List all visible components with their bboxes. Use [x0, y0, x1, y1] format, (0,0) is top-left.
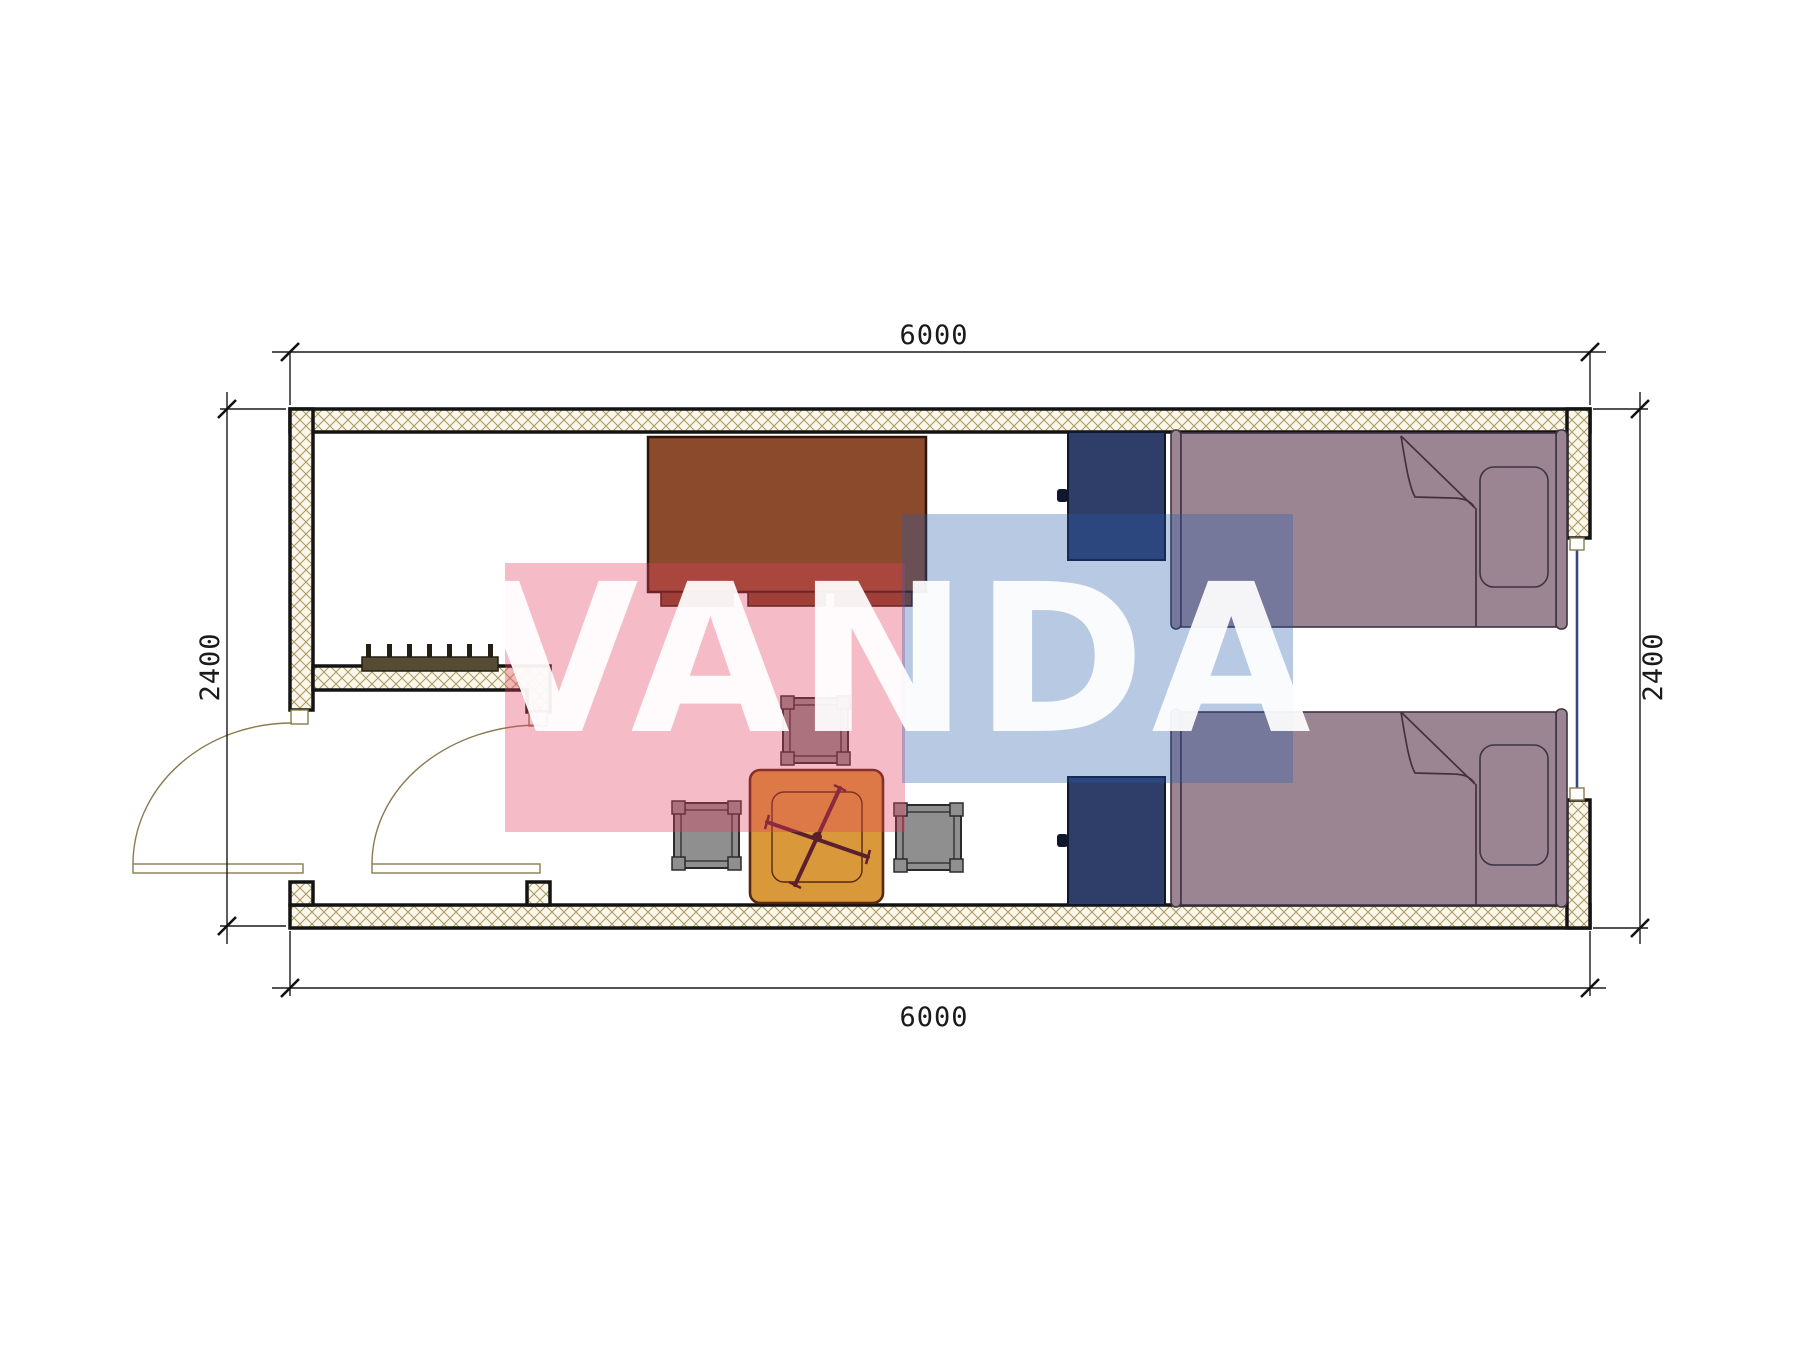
- stool-leg: [728, 857, 741, 870]
- window-jamb-top: [1570, 538, 1584, 550]
- door-pier-inner: [527, 882, 550, 905]
- window-jamb-bottom: [1570, 788, 1584, 800]
- bed-pillow: [1480, 745, 1548, 865]
- dimension-line: [272, 931, 1606, 996]
- radiator-fin: [366, 644, 371, 658]
- stool-leg: [950, 859, 963, 872]
- radiator-fin: [407, 644, 412, 658]
- radiator: [362, 644, 498, 671]
- dimension-line: [272, 352, 1606, 405]
- wall-bottom: [290, 905, 1590, 928]
- radiator-fin: [387, 644, 392, 658]
- entry-door-left: [133, 723, 303, 873]
- stool-leg: [894, 859, 907, 872]
- stool-leg: [672, 857, 685, 870]
- door-leaf: [133, 864, 303, 873]
- watermark-text: VANDA: [479, 540, 1317, 780]
- dimension-bottom: 6000: [272, 931, 1606, 1033]
- nightstand-body: [1068, 777, 1165, 905]
- wall-top: [290, 409, 1590, 432]
- wall-left: [290, 409, 313, 710]
- door-leaf: [372, 864, 540, 873]
- table-leg-hub: [812, 832, 822, 842]
- dimension-left: 2400: [195, 392, 286, 944]
- floor-plan-canvas: 6000 6000 2400 2400 VANDA: [0, 0, 1800, 1350]
- bed-pillow: [1480, 467, 1548, 587]
- nightstand-knob: [1057, 489, 1068, 502]
- door-swing-arc: [133, 723, 292, 864]
- window-right: [1570, 538, 1584, 800]
- bed-headboard: [1556, 430, 1567, 629]
- wall-right-upper: [1567, 409, 1590, 538]
- floor-plan-drawing: 6000 6000 2400 2400 VANDA: [0, 0, 1800, 1350]
- nightstand-knob: [1057, 834, 1068, 847]
- nightstand-bottom: [1057, 777, 1165, 905]
- dimension-right: 2400: [1593, 392, 1669, 944]
- radiator-fin: [447, 644, 452, 658]
- door-jamb-left: [291, 710, 308, 724]
- wall-right-lower: [1567, 800, 1590, 928]
- radiator-fin: [467, 644, 472, 658]
- dimension-top: 6000: [272, 320, 1606, 405]
- stool-leg: [950, 803, 963, 816]
- door-pier-left: [290, 882, 313, 905]
- bed-headboard: [1556, 709, 1567, 907]
- dimension-value-left: 2400: [195, 632, 226, 701]
- dimension-line: [220, 392, 286, 944]
- dimension-value-bottom: 6000: [899, 1002, 968, 1033]
- dimension-value-top: 6000: [899, 320, 968, 351]
- radiator-body: [362, 657, 498, 671]
- dimension-value-right: 2400: [1638, 632, 1669, 701]
- radiator-fin: [427, 644, 432, 658]
